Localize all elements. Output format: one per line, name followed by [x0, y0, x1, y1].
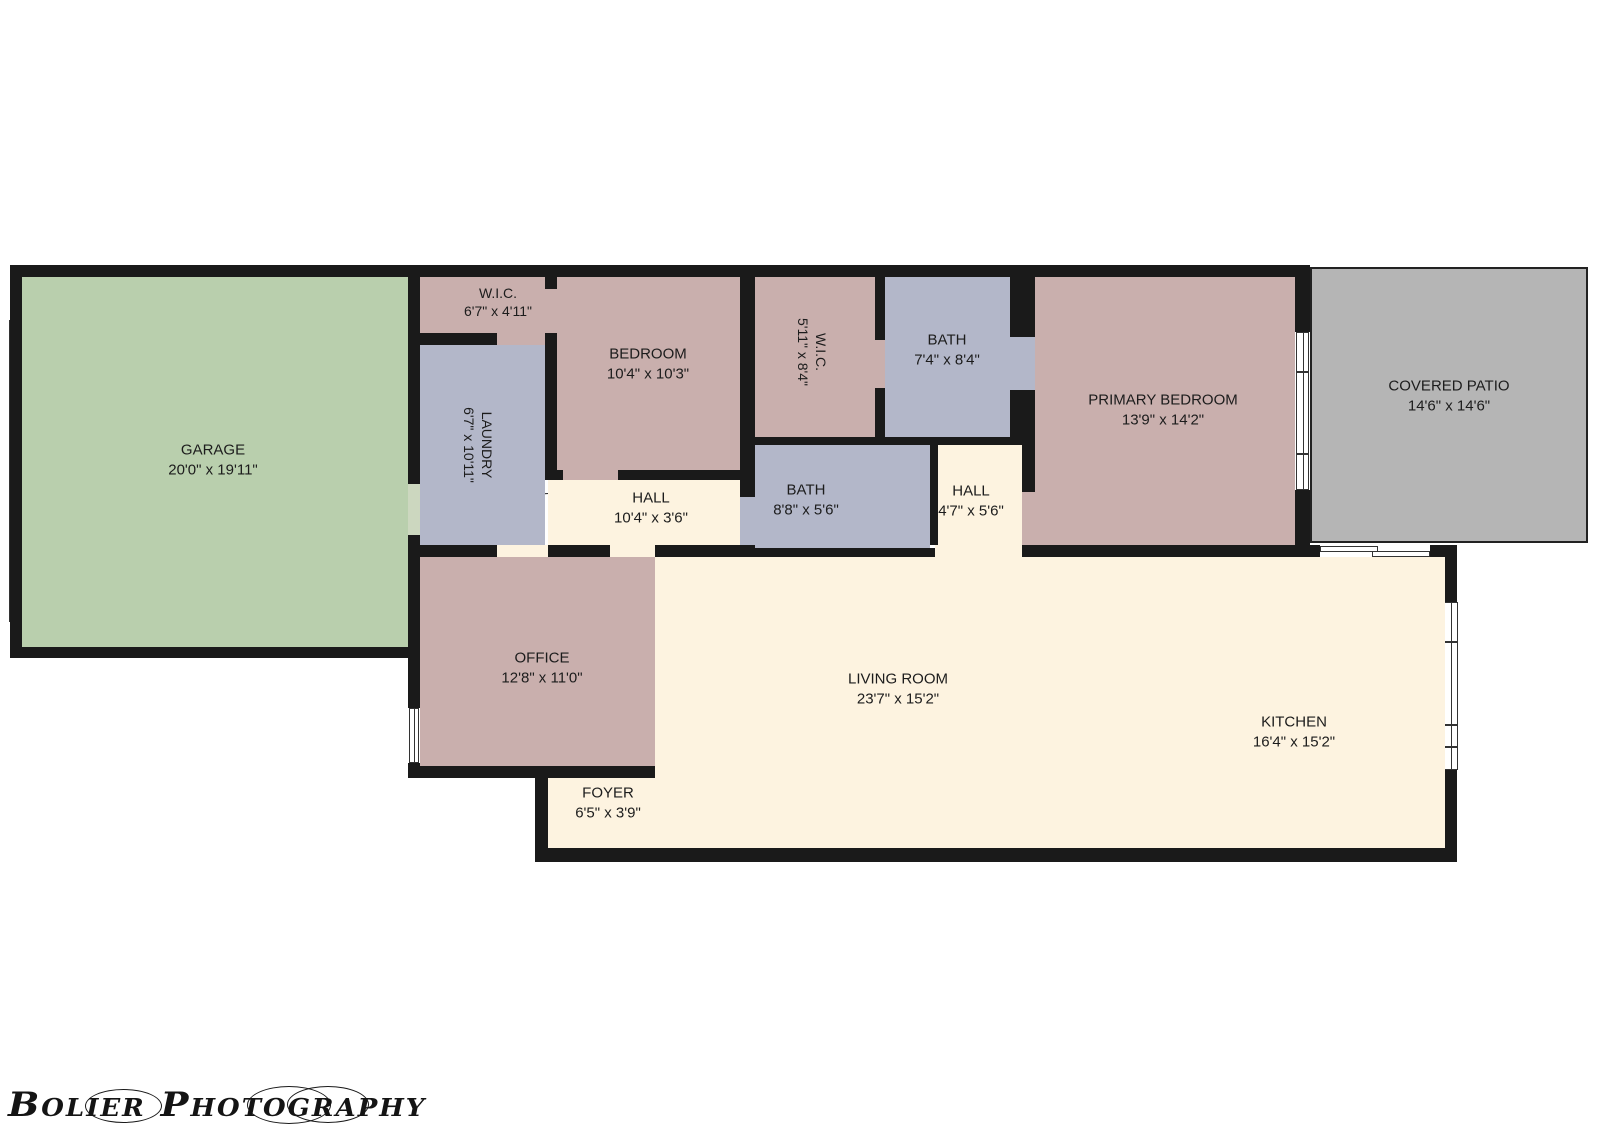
room-label-bath1: BATH 7'4" x 8'4"	[914, 331, 980, 370]
room-label-bedroom: BEDROOM 10'4" x 10'3"	[607, 345, 689, 384]
room-dims: 23'7" x 15'2"	[857, 690, 939, 707]
wall	[408, 763, 420, 778]
wall	[930, 445, 938, 545]
wall	[1295, 490, 1310, 545]
floor-plan: GARAGE 20'0" x 19'11" W.I.C. 6'7" x 4'11…	[0, 0, 1600, 1133]
opening-hall1	[610, 545, 655, 557]
wall	[535, 778, 548, 852]
wall	[535, 848, 1457, 862]
wall	[410, 265, 1310, 277]
opening-hall2	[935, 545, 1022, 557]
room-dims: 6'7" x 10'11"	[461, 407, 477, 483]
room-name: GARAGE	[181, 442, 245, 459]
room-dims: 7'4" x 8'4"	[914, 351, 980, 368]
window-rail	[414, 709, 415, 762]
room-label-living: LIVING ROOM 23'7" x 15'2"	[848, 670, 948, 709]
room-dims: 8'8" x 5'6"	[773, 501, 839, 518]
wall	[875, 388, 885, 437]
window-rail	[1451, 603, 1452, 769]
room-name: BATH	[787, 482, 826, 499]
room-dims: 5'11" x 8'4"	[795, 318, 811, 386]
garage-door-leaf	[408, 484, 420, 535]
floor-main	[655, 557, 1445, 848]
room-dims: 13'9" x 14'2"	[1122, 411, 1204, 428]
room-label-laundry: LAUNDRY 6'7" x 10'11"	[460, 407, 496, 483]
room-dims: 12'8" x 11'0"	[501, 669, 582, 686]
window	[1444, 602, 1458, 770]
room-label-wic2: W.I.C. 5'11" x 8'4"	[794, 318, 830, 386]
room-name: PRIMARY BEDROOM	[1088, 392, 1237, 409]
opening-laundry	[497, 545, 548, 557]
opening-wic1-door	[545, 289, 557, 333]
room-label-bath2: BATH 8'8" x 5'6"	[773, 481, 839, 520]
wall	[408, 766, 667, 778]
wall	[408, 277, 420, 484]
room-dims: 6'5" x 3'9"	[575, 804, 641, 821]
window-mullion	[1445, 724, 1457, 726]
opening-bath1-door	[1010, 337, 1035, 390]
window-rail	[1303, 333, 1304, 489]
wall	[1022, 545, 1320, 557]
room-name: COVERED PATIO	[1388, 378, 1509, 395]
wall	[1445, 770, 1457, 862]
wall	[1022, 445, 1035, 492]
room-name: BEDROOM	[609, 346, 687, 363]
room-dims: 14'6" x 14'6"	[1408, 397, 1490, 414]
opening-bedroom-door	[563, 470, 618, 480]
room-name: OFFICE	[515, 650, 570, 667]
room-label-garage: GARAGE 20'0" x 19'11"	[168, 441, 258, 480]
opening-wic2-door	[875, 340, 885, 388]
wall	[618, 470, 740, 480]
wall	[408, 557, 420, 708]
wall	[655, 545, 755, 557]
room-label-patio: COVERED PATIO 14'6" x 14'6"	[1388, 377, 1509, 416]
room-label-foyer: FOYER 6'5" x 3'9"	[575, 784, 641, 823]
room-label-primary: PRIMARY BEDROOM 13'9" x 14'2"	[1088, 391, 1237, 430]
room-label-kitchen: KITCHEN 16'4" x 15'2"	[1253, 713, 1335, 752]
room-name: LIVING ROOM	[848, 671, 948, 688]
window	[1296, 332, 1309, 490]
wall	[548, 545, 610, 557]
room-label-hall1: HALL 10'4" x 3'6"	[614, 489, 688, 528]
opening-primary-door	[1022, 492, 1035, 545]
window-mullion	[1297, 453, 1308, 455]
room-dims: 20'0" x 19'11"	[168, 461, 258, 478]
room-name: LAUNDRY	[479, 412, 495, 479]
room-label-office: OFFICE 12'8" x 11'0"	[501, 649, 582, 688]
room-label-hall2: HALL 4'7" x 5'6"	[938, 482, 1004, 521]
room-name: KITCHEN	[1261, 714, 1327, 731]
room-name: BATH	[928, 332, 967, 349]
room-name: FOYER	[582, 785, 634, 802]
wall	[1010, 390, 1035, 445]
window	[409, 708, 419, 763]
room-dims: 10'4" x 3'6"	[614, 509, 688, 526]
wall	[740, 265, 755, 497]
photographer-watermark: Bolier Photography	[8, 1084, 426, 1124]
wall	[408, 535, 420, 557]
room-name: W.I.C.	[813, 333, 829, 371]
wall	[408, 545, 497, 557]
wall	[545, 333, 557, 480]
room-dims: 4'7" x 5'6"	[938, 502, 1004, 519]
window-mullion	[1445, 746, 1457, 748]
wall	[10, 265, 22, 658]
window-mullion	[1297, 371, 1308, 373]
room-dims: 6'7" x 4'11"	[464, 303, 532, 319]
room-dims: 10'4" x 10'3"	[607, 365, 689, 382]
wall	[1430, 545, 1457, 557]
sliding-door-panel	[1320, 546, 1378, 552]
wall	[10, 646, 410, 658]
room-label-wic1: W.I.C. 6'7" x 4'11"	[464, 284, 532, 320]
room-dims: 16'4" x 15'2"	[1253, 733, 1335, 750]
room-name: HALL	[952, 483, 990, 500]
window-mullion	[1445, 641, 1457, 643]
room-name: HALL	[632, 490, 670, 507]
wall	[740, 437, 1035, 445]
wall	[10, 265, 410, 277]
room-name: W.I.C.	[479, 285, 517, 301]
opening-bath2-door	[740, 497, 755, 545]
wall	[1445, 557, 1457, 602]
